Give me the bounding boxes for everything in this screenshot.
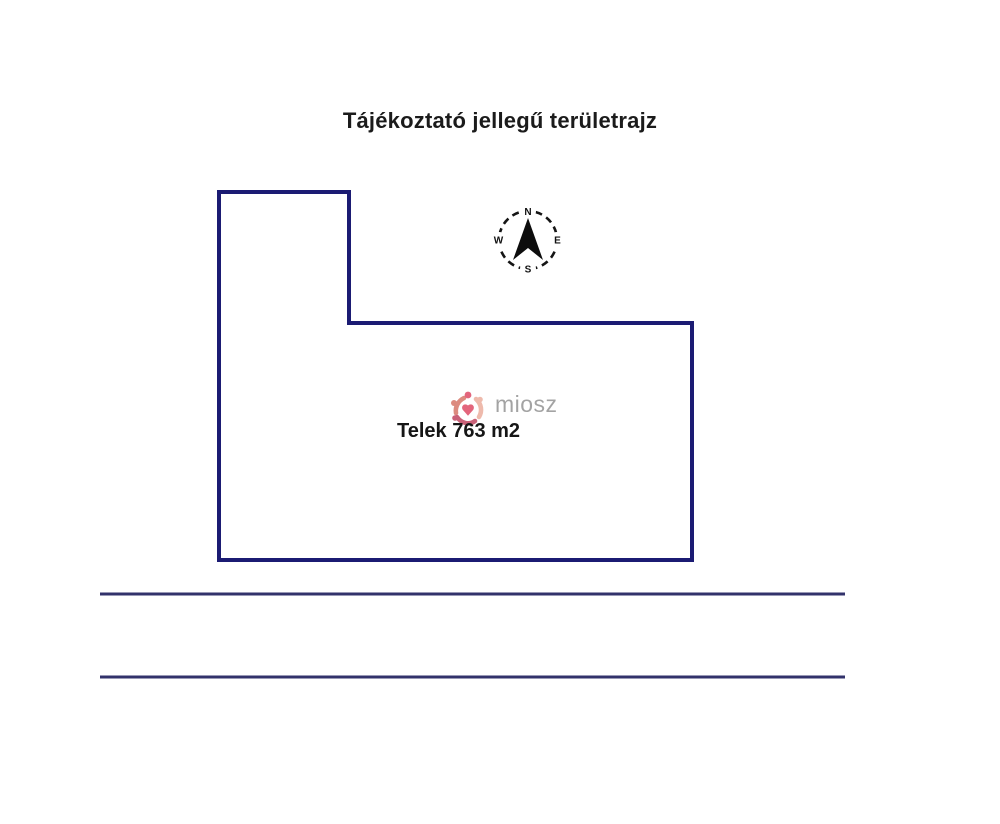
- compass-west-label: W: [494, 236, 504, 247]
- miosz-wordmark: miosz: [495, 392, 558, 417]
- area-drawing-canvas: Tájékoztató jellegű területrajz N S W E: [0, 0, 1000, 824]
- plot-outline: [219, 192, 692, 560]
- compass-east-label: E: [554, 236, 561, 247]
- compass-needle-icon: [513, 218, 543, 260]
- plot-area-label: Telek 763 m2: [397, 420, 520, 443]
- compass-rose-icon: N S W E: [492, 204, 564, 276]
- compass-north-label: N: [524, 207, 531, 218]
- compass-south-label: S: [525, 265, 532, 276]
